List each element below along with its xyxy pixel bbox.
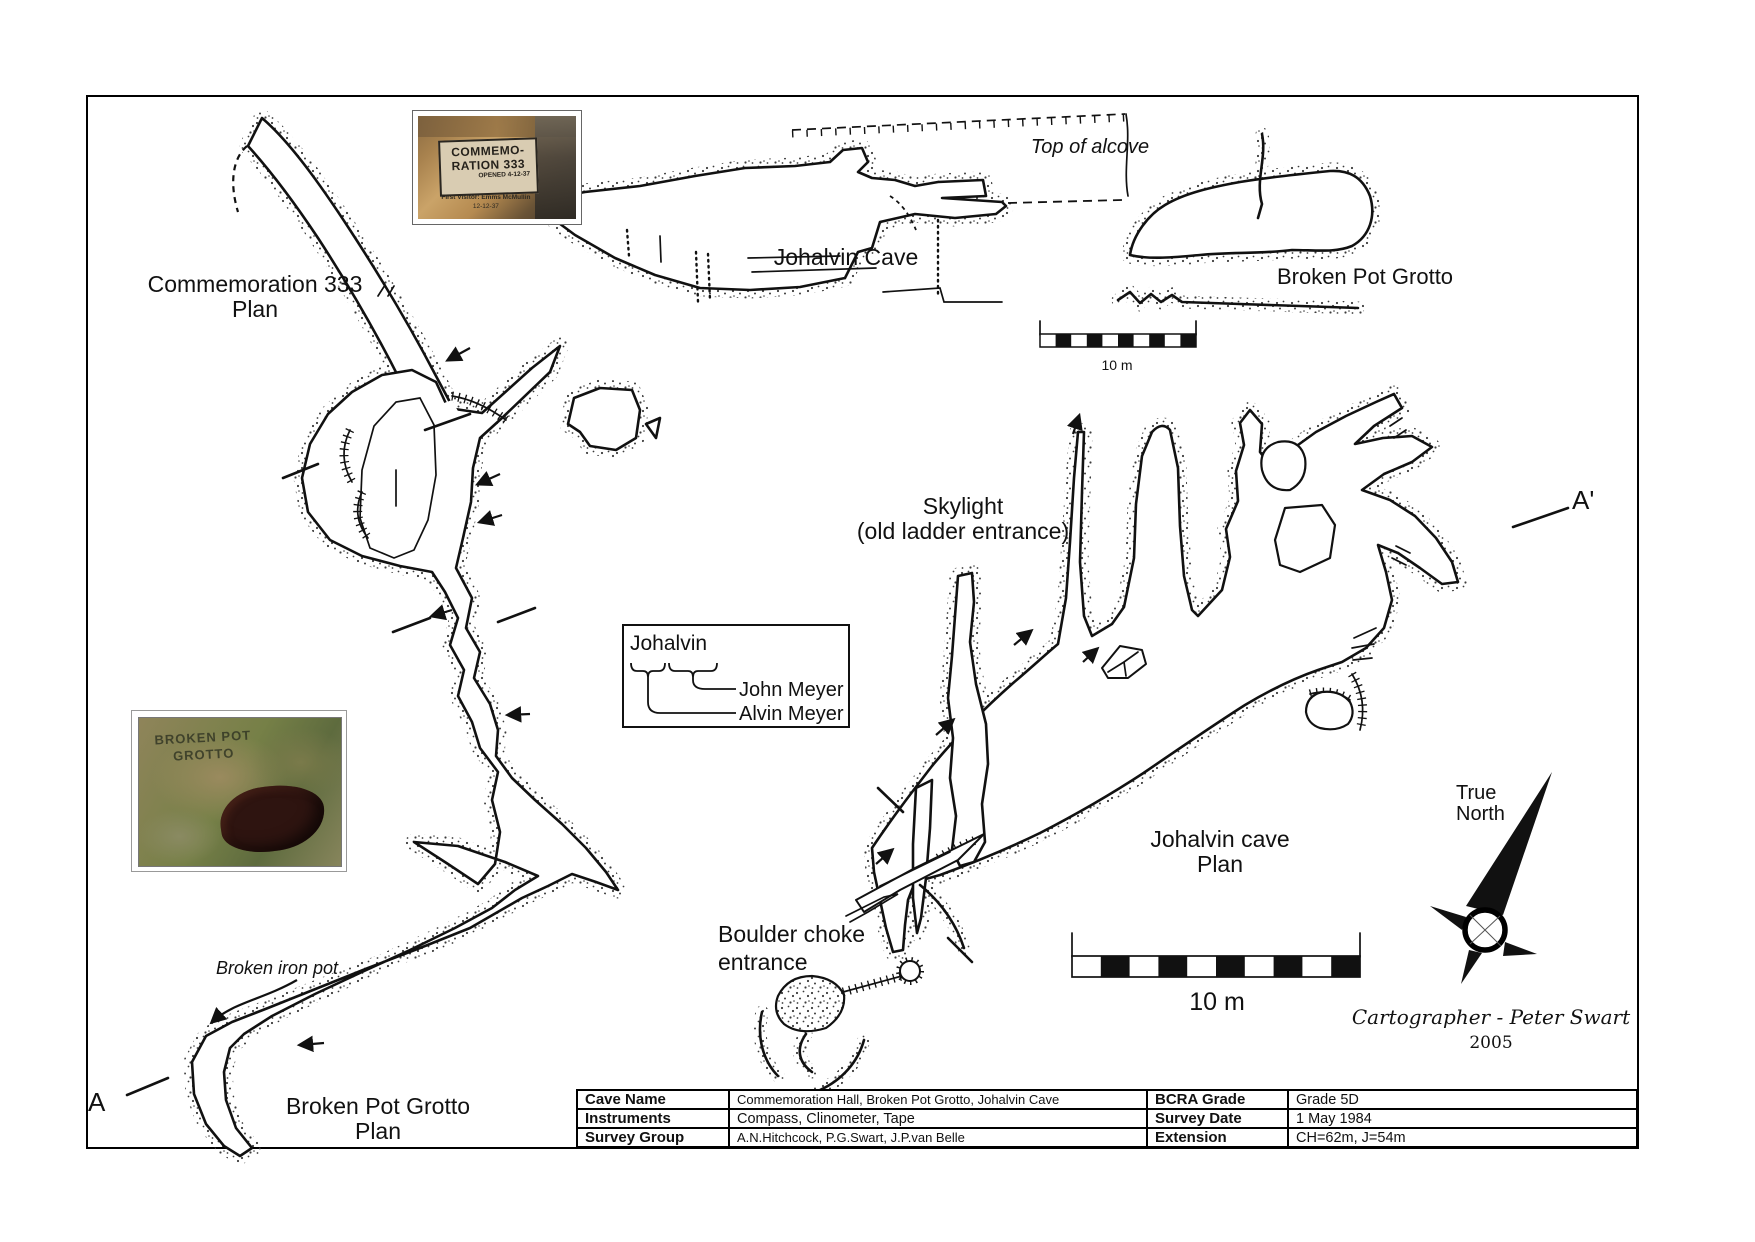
grotto-sign-line-1: BROKEN POT	[154, 727, 251, 747]
johalvin-plan-title: Johalvin cave	[1150, 827, 1289, 853]
photo-mossy-rock: BROKEN POT GROTTO	[138, 717, 342, 867]
derivation-name-alvin: Alvin Meyer	[739, 703, 843, 726]
cave-name-label: Cave Name	[577, 1090, 729, 1109]
survey-date-value: 1 May 1984	[1288, 1109, 1637, 1128]
true-north-label-1: True	[1456, 782, 1496, 804]
grotto-sign-line-2: GROTTO	[173, 745, 235, 763]
johalvin-plan-subtitle: Plan	[1197, 852, 1243, 878]
extension-label: Extension	[1147, 1128, 1288, 1147]
top-of-alcove-label: Top of alcove	[1031, 136, 1149, 158]
skylight-label: Skylight	[923, 494, 1004, 520]
broken-pot-section-title: Broken Pot Grotto	[1277, 265, 1453, 290]
grotto-painted-sign: BROKEN POT GROTTO	[154, 727, 252, 766]
derivation-name-john: John Meyer	[739, 679, 844, 702]
table-row: Instruments Compass, Clinometer, Tape Su…	[577, 1109, 1637, 1128]
photo-rock-background: COMMEMO- RATION 333 OPENED 4-12-37 First…	[418, 116, 576, 219]
boulder-choke-label: Boulder choke	[718, 922, 865, 948]
derivation-compound-name: Johalvin	[630, 632, 707, 656]
section-marker-a: A	[88, 1088, 105, 1117]
sign-line-4: First Visitor: Emms McMullin	[431, 194, 542, 201]
extension-value: CH=62m, J=54m	[1288, 1128, 1637, 1147]
bcra-grade-value: Grade 5D	[1288, 1090, 1637, 1109]
broken-iron-pot-in-photo	[216, 779, 329, 858]
skylight-sub-label: (old ladder entrance)	[857, 519, 1069, 545]
cave-map-drawing	[0, 0, 1755, 1242]
sign-line-5: 12-12-37	[431, 203, 542, 210]
broken-pot-grotto-photo: BROKEN POT GROTTO	[131, 710, 347, 872]
broken-pot-plan-subtitle: Plan	[355, 1119, 401, 1145]
scale-bar-bottom	[1072, 933, 1360, 977]
survey-group-label: Survey Group	[577, 1128, 729, 1147]
broken-pot-plan-title: Broken Pot Grotto	[286, 1094, 470, 1120]
commemoration-sign-photo: COMMEMO- RATION 333 OPENED 4-12-37 First…	[412, 110, 582, 225]
table-row: Survey Group A.N.Hitchcock, P.G.Swart, J…	[577, 1128, 1637, 1147]
boulder-choke-sub-label: entrance	[718, 950, 808, 976]
cave-survey-sheet: Commemoration 333 Plan Johalvin Cave Bro…	[0, 0, 1755, 1242]
cartographer-year: 2005	[1469, 1034, 1512, 1053]
bcra-grade-label: BCRA Grade	[1147, 1090, 1288, 1109]
scale-bar-top	[1040, 321, 1196, 347]
johalvin-section-title: Johalvin Cave	[774, 245, 918, 271]
scale-bottom-label: 10 m	[1189, 988, 1245, 1016]
instruments-value: Compass, Clinometer, Tape	[729, 1109, 1147, 1128]
commemoration-plan-title: Commemoration 333	[148, 272, 363, 298]
instruments-label: Instruments	[577, 1109, 729, 1128]
survey-date-label: Survey Date	[1147, 1109, 1288, 1128]
survey-info-table: Cave Name Commemoration Hall, Broken Pot…	[576, 1089, 1638, 1148]
name-derivation-box: Johalvin John Meyer Alvin Meyer	[622, 624, 850, 728]
cartographer-credit: Cartographer - Peter Swart	[1352, 1006, 1630, 1028]
cave-name-value: Commemoration Hall, Broken Pot Grotto, J…	[729, 1090, 1147, 1109]
commemoration-plan-subtitle: Plan	[232, 297, 278, 323]
broken-iron-pot-label: Broken iron pot	[216, 958, 338, 978]
survey-group-value: A.N.Hitchcock, P.G.Swart, J.P.van Belle	[729, 1128, 1147, 1147]
true-north-label-2: North	[1456, 803, 1505, 825]
scale-top-label: 10 m	[1101, 358, 1132, 374]
section-marker-a-prime: A'	[1572, 486, 1594, 515]
table-row: Cave Name Commemoration Hall, Broken Pot…	[577, 1090, 1637, 1109]
painted-sign: COMMEMO- RATION 333 OPENED 4-12-37	[438, 137, 539, 196]
